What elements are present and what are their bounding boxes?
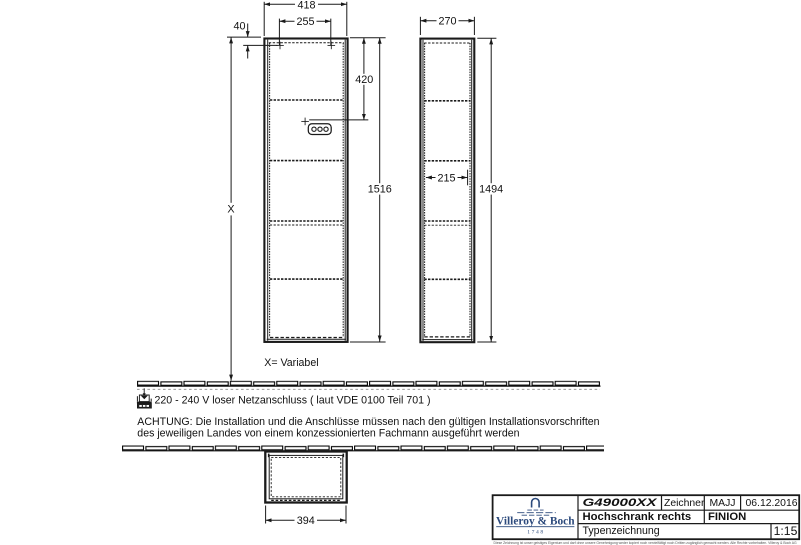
svg-text:420: 420	[355, 74, 373, 86]
svg-text:X= Variabel: X= Variabel	[264, 357, 318, 369]
svg-text:1:15: 1:15	[774, 524, 798, 538]
svg-text:1516: 1516	[368, 184, 392, 196]
svg-text:des jeweiligen Landes von eine: des jeweiligen Landes von einem konzessi…	[137, 427, 519, 439]
svg-text:220 - 240 V loser Netzanschlus: 220 - 240 V loser Netzanschluss ( laut V…	[155, 394, 431, 406]
svg-text:394: 394	[297, 515, 315, 527]
svg-text:Diese Zeichnung ist unser geis: Diese Zeichnung ist unser geistiges Eige…	[494, 541, 798, 545]
svg-text:215: 215	[437, 172, 455, 184]
svg-text:Hochschrank rechts: Hochschrank rechts	[583, 511, 692, 523]
svg-text:FINION: FINION	[708, 511, 746, 523]
svg-text:X: X	[227, 203, 234, 215]
svg-text:1494: 1494	[479, 184, 503, 196]
svg-text:418: 418	[297, 0, 315, 11]
svg-text:ACHTUNG: Die Installation und: ACHTUNG: Die Installation und die Anschl…	[137, 416, 599, 428]
svg-text:255: 255	[296, 16, 314, 28]
svg-text:G49000XX: G49000XX	[583, 497, 659, 509]
svg-text:40: 40	[233, 21, 245, 33]
svg-text:1748: 1748	[527, 530, 545, 536]
svg-text:MAJJ: MAJJ	[710, 498, 736, 509]
svg-text:270: 270	[438, 16, 456, 28]
svg-text:Zeichner: Zeichner	[664, 498, 705, 509]
svg-text:Typenzeichnung: Typenzeichnung	[583, 525, 660, 537]
svg-text:06.12.2016: 06.12.2016	[746, 498, 798, 509]
svg-text:Villeroy & Boch: Villeroy & Boch	[496, 515, 575, 528]
